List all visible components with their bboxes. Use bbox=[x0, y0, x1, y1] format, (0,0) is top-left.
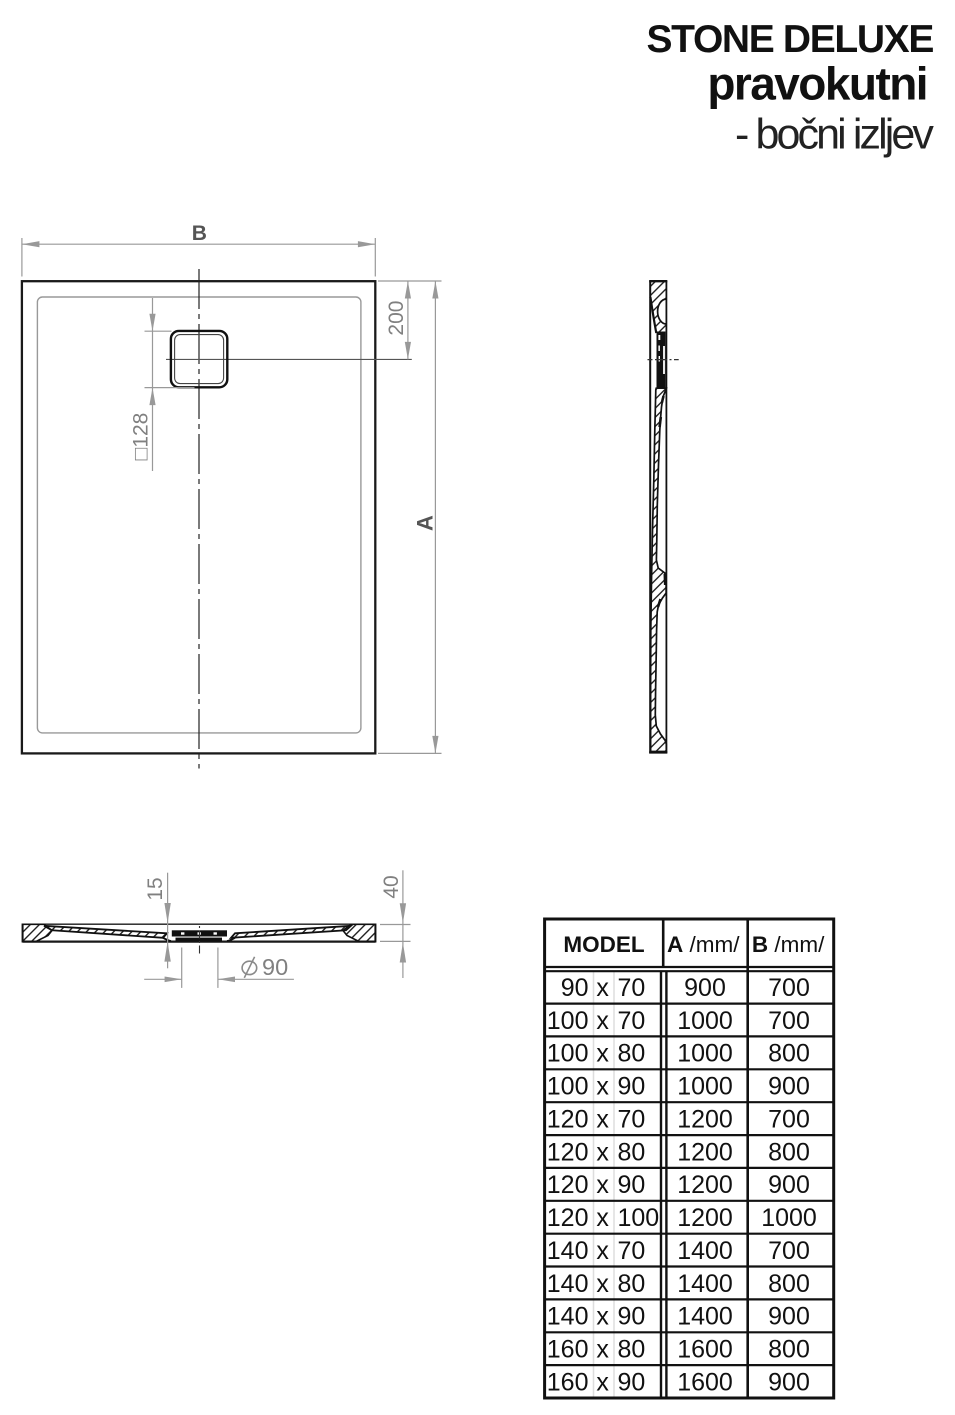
svg-text:x: x bbox=[596, 1368, 609, 1396]
svg-text:x: x bbox=[596, 1204, 609, 1232]
svg-text:90: 90 bbox=[618, 1368, 646, 1396]
svg-text:STONE DELUXE: STONE DELUXE bbox=[647, 18, 934, 61]
svg-text:900: 900 bbox=[684, 974, 726, 1002]
svg-text:1000: 1000 bbox=[677, 1040, 733, 1068]
svg-text:1400: 1400 bbox=[677, 1303, 733, 1331]
svg-text:900: 900 bbox=[768, 1368, 810, 1396]
svg-text:x: x bbox=[596, 1007, 609, 1035]
svg-text:x: x bbox=[596, 1237, 609, 1265]
svg-text:800: 800 bbox=[768, 1138, 810, 1166]
svg-text:160: 160 bbox=[547, 1368, 589, 1396]
svg-text:100: 100 bbox=[547, 1073, 589, 1101]
svg-text:140: 140 bbox=[547, 1237, 589, 1265]
svg-text:90: 90 bbox=[618, 1171, 646, 1199]
svg-text:100: 100 bbox=[547, 1007, 589, 1035]
svg-text:x: x bbox=[596, 1138, 609, 1166]
svg-text:1600: 1600 bbox=[677, 1336, 733, 1364]
svg-text:120: 120 bbox=[547, 1204, 589, 1232]
svg-text:A /mm/: A /mm/ bbox=[667, 932, 740, 957]
svg-text:1200: 1200 bbox=[677, 1171, 733, 1199]
svg-text:MODEL: MODEL bbox=[563, 932, 645, 957]
svg-text:140: 140 bbox=[547, 1270, 589, 1298]
svg-text:1000: 1000 bbox=[761, 1204, 817, 1232]
svg-text:700: 700 bbox=[768, 1007, 810, 1035]
svg-text:1000: 1000 bbox=[677, 1007, 733, 1035]
svg-text:15: 15 bbox=[144, 877, 167, 900]
svg-text:40: 40 bbox=[380, 875, 403, 898]
svg-text:1000: 1000 bbox=[677, 1073, 733, 1101]
svg-text:- bočni izljev: - bočni izljev bbox=[735, 111, 934, 159]
svg-text:B: B bbox=[192, 222, 207, 245]
svg-text:800: 800 bbox=[768, 1336, 810, 1364]
svg-text:70: 70 bbox=[618, 1237, 646, 1265]
svg-text:90: 90 bbox=[262, 954, 288, 980]
svg-text:700: 700 bbox=[768, 974, 810, 1002]
svg-text:B /mm/: B /mm/ bbox=[752, 932, 825, 957]
svg-text:90: 90 bbox=[618, 1073, 646, 1101]
svg-text:x: x bbox=[596, 974, 609, 1002]
svg-text:200: 200 bbox=[385, 301, 408, 336]
svg-text:900: 900 bbox=[768, 1171, 810, 1199]
svg-text:x: x bbox=[596, 1336, 609, 1364]
svg-text:90: 90 bbox=[561, 974, 589, 1002]
svg-text:x: x bbox=[596, 1270, 609, 1298]
svg-text:120: 120 bbox=[547, 1171, 589, 1199]
svg-text:90: 90 bbox=[618, 1303, 646, 1331]
svg-text:700: 700 bbox=[768, 1106, 810, 1134]
svg-text:700: 700 bbox=[768, 1237, 810, 1265]
svg-text:100: 100 bbox=[618, 1204, 660, 1232]
svg-text:1200: 1200 bbox=[677, 1138, 733, 1166]
svg-text:A: A bbox=[413, 515, 438, 531]
svg-text:80: 80 bbox=[618, 1040, 646, 1068]
svg-text:x: x bbox=[596, 1303, 609, 1331]
svg-text:120: 120 bbox=[547, 1106, 589, 1134]
svg-text:140: 140 bbox=[547, 1303, 589, 1331]
svg-text:70: 70 bbox=[618, 1007, 646, 1035]
svg-text:80: 80 bbox=[618, 1336, 646, 1364]
svg-text:900: 900 bbox=[768, 1073, 810, 1101]
svg-text:70: 70 bbox=[618, 974, 646, 1002]
svg-text:pravokutni: pravokutni bbox=[707, 58, 927, 110]
svg-text:x: x bbox=[596, 1171, 609, 1199]
svg-text:900: 900 bbox=[768, 1303, 810, 1331]
svg-text:800: 800 bbox=[768, 1270, 810, 1298]
svg-text:1400: 1400 bbox=[677, 1237, 733, 1265]
svg-text:160: 160 bbox=[547, 1336, 589, 1364]
svg-text:x: x bbox=[596, 1106, 609, 1134]
svg-text:x: x bbox=[596, 1073, 609, 1101]
svg-text:1600: 1600 bbox=[677, 1368, 733, 1396]
svg-text:1200: 1200 bbox=[677, 1106, 733, 1134]
svg-text:80: 80 bbox=[618, 1270, 646, 1298]
svg-text:1400: 1400 bbox=[677, 1270, 733, 1298]
svg-text:800: 800 bbox=[768, 1040, 810, 1068]
svg-text:□128: □128 bbox=[130, 413, 153, 461]
svg-text:120: 120 bbox=[547, 1138, 589, 1166]
svg-text:70: 70 bbox=[618, 1106, 646, 1134]
svg-text:80: 80 bbox=[618, 1138, 646, 1166]
svg-text:100: 100 bbox=[547, 1040, 589, 1068]
svg-text:x: x bbox=[596, 1040, 609, 1068]
svg-text:1200: 1200 bbox=[677, 1204, 733, 1232]
